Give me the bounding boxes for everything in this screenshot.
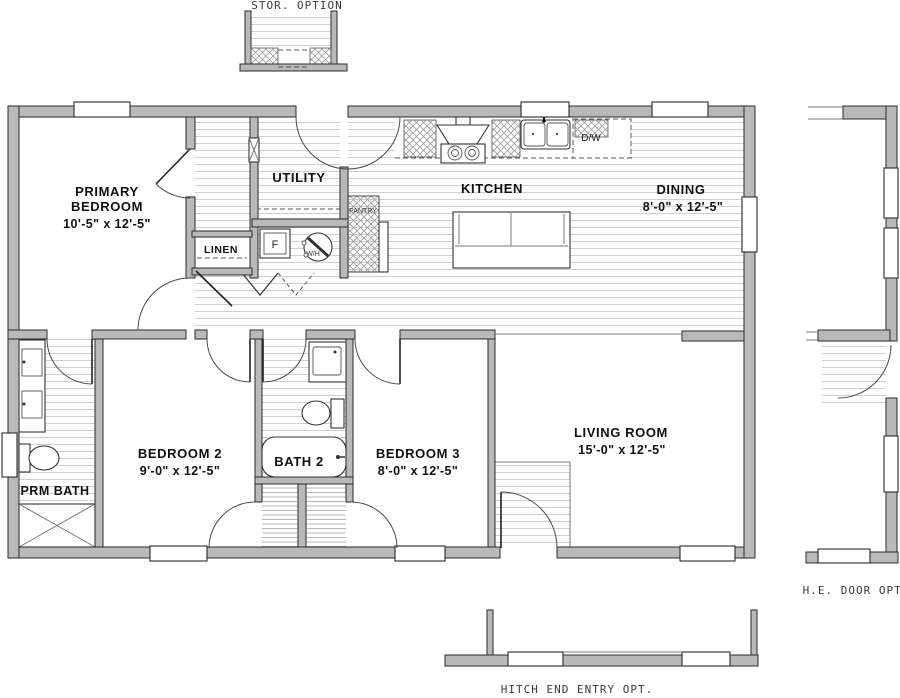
window-living-room: [680, 546, 735, 561]
bedroom3-closet-shelves: [306, 484, 346, 547]
door-arc-bedroom3-closet: [351, 502, 397, 548]
toilet-icon: [19, 444, 59, 472]
bedroom2-closet-shelves: [262, 484, 298, 547]
double-vanity-icon: [19, 340, 45, 432]
exterior-wall-top-left: [8, 106, 296, 117]
linen-label: LINEN: [204, 244, 238, 256]
he-landing-floor: [822, 342, 886, 406]
he-window-2: [884, 228, 898, 278]
exterior-wall-right: [744, 106, 755, 558]
hitch-option-structure: [445, 610, 758, 666]
window-bedroom3: [395, 546, 445, 561]
bath2-toilet-icon: [302, 399, 344, 428]
prm-bath-label: PRM BATH: [20, 484, 89, 498]
storage-siding: [251, 13, 331, 48]
wall-living-top: [682, 331, 744, 341]
bath2-label: BATH 2: [274, 454, 324, 469]
door-arc-bedroom2: [207, 339, 250, 382]
he-window-3: [884, 436, 898, 492]
bath2-vanity-icon: [309, 342, 347, 382]
storage-option-structure: [240, 11, 347, 71]
storage-wall-right: [331, 11, 337, 64]
wall-mid-e: [306, 330, 355, 339]
window-bedroom2: [150, 546, 207, 561]
pantry-label: PANTRY: [349, 208, 377, 215]
window-dining-right: [742, 197, 757, 252]
countertop-left: [404, 120, 436, 157]
hitch-option-label: HITCH END ENTRY OPT.: [501, 683, 653, 696]
he-door-option-label: H.E. DOOR OPT.: [803, 584, 900, 597]
wall-primary-closet-a: [186, 117, 195, 149]
bedroom2-label: BEDROOM 2: [138, 446, 222, 461]
floor-plan: STOR. OPTION H.E. DOOR OPT. HITCH END EN…: [0, 0, 900, 698]
door-leaf-primary-closet: [156, 149, 190, 184]
primary-closet-floor: [195, 117, 250, 232]
floor-plan-svg: STOR. OPTION H.E. DOOR OPT. HITCH END EN…: [0, 0, 900, 698]
wall-linen-bottom: [192, 268, 252, 275]
he-window-4: [818, 549, 870, 563]
wall-mid-a: [8, 330, 47, 339]
dining-label: DINING: [656, 182, 705, 197]
wall-bath2-bottom: [255, 477, 353, 484]
wall-bedroom3-right: [488, 339, 495, 547]
kitchen-island-icon: [453, 212, 570, 268]
he-window-1: [884, 168, 898, 218]
he-door-option-structure: [806, 106, 898, 563]
refrigerator-icon: [379, 222, 388, 272]
storage-counter-left: [251, 48, 278, 64]
labels: STOR. OPTION H.E. DOOR OPT. HITCH END EN…: [20, 0, 900, 696]
window-primary-bedroom: [74, 102, 130, 117]
wall-mid-f: [400, 330, 495, 339]
window-dining: [652, 102, 708, 117]
door-arc-bedroom2-closet: [209, 502, 255, 548]
wall-prm-bath-right: [95, 339, 103, 547]
entry-landing-floor: [495, 462, 570, 547]
countertop-mid: [492, 120, 520, 157]
utility-label: UTILITY: [272, 170, 325, 185]
living-room-dims: 15'-0" x 12'-5": [578, 443, 666, 457]
he-wall-mid: [818, 330, 890, 341]
storage-counter-right: [310, 48, 331, 64]
dishwasher-label: D/W: [581, 133, 601, 144]
wall-mid-b: [92, 330, 186, 339]
wall-alcove-top: [252, 219, 348, 227]
primary-bedroom-label-1: PRIMARY: [75, 184, 139, 199]
hitch-wall-stub-right: [751, 610, 757, 656]
window-prm-bath: [2, 433, 17, 477]
kitchen-label: KITCHEN: [461, 181, 523, 196]
dining-dims: 8'-0" x 12'-5": [643, 200, 723, 214]
wall-closet-divider: [298, 484, 306, 547]
hitch-window-right: [682, 652, 730, 666]
bedroom3-label: BEDROOM 3: [376, 446, 460, 461]
shower-icon: [19, 504, 95, 547]
door-arc-primary-closet: [156, 184, 190, 198]
wall-mid-d: [250, 330, 263, 339]
storage-wall-left: [245, 11, 251, 64]
hitch-wall-stub-left: [487, 610, 493, 656]
window-kitchen: [521, 102, 569, 117]
wall-mid-c: [195, 330, 207, 339]
door-arc-primary-bedroom: [138, 278, 190, 330]
storage-option-label: STOR. OPTION: [251, 0, 342, 12]
furnace-label: F: [272, 239, 279, 251]
hall-floor: [195, 276, 252, 332]
primary-bedroom-label-2: BEDROOM: [71, 199, 143, 214]
water-heater-label: W/H: [306, 251, 320, 258]
storage-wall-bottom: [240, 64, 347, 71]
he-wall-right-a: [886, 106, 897, 168]
door-arc-bedroom3: [355, 339, 400, 384]
hitch-window-left: [508, 652, 563, 666]
living-room-label: LIVING ROOM: [574, 425, 668, 440]
wall-linen-top: [192, 231, 252, 237]
bedroom2-dims: 9'-0" x 12'-5": [140, 464, 220, 478]
column-post-icon: [249, 138, 259, 162]
primary-bedroom-dims: 10'-5" x 12'-5": [63, 217, 151, 231]
he-wall-right-b: [886, 218, 897, 228]
utility-floor: [258, 117, 340, 218]
bedroom3-dims: 8'-0" x 12'-5": [378, 464, 458, 478]
